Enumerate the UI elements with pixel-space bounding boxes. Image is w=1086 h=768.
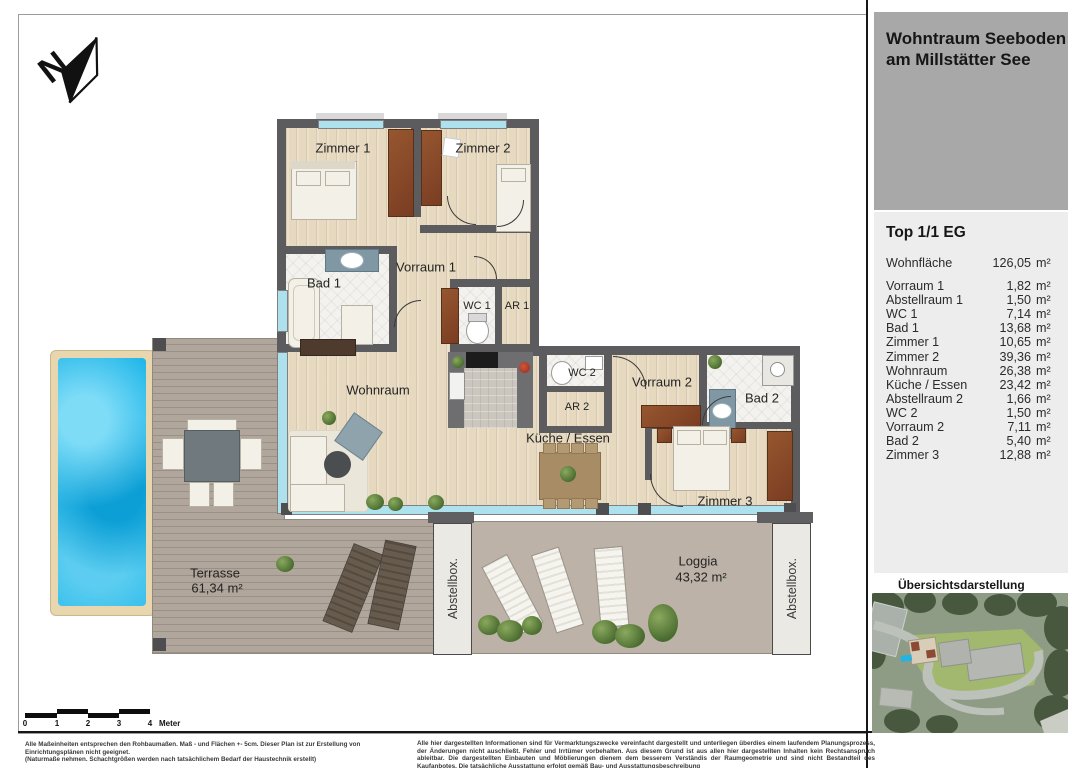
bed: [291, 161, 357, 220]
room-row-unit: m²: [1031, 434, 1058, 448]
room-row-value: 26,38: [981, 364, 1031, 378]
room-row-label: Abstellraum 1: [886, 293, 981, 307]
wardrobe: [388, 129, 414, 217]
wall-segment: [450, 344, 539, 352]
cooktop: [466, 352, 498, 368]
window: [440, 120, 507, 129]
room-label-wc2: WC 2: [568, 367, 596, 379]
room-row: WC 17,14m²: [886, 307, 1058, 321]
wall-segment: [495, 287, 502, 349]
abstellbox-2: Abstellbox.: [772, 523, 811, 655]
room-row: Zimmer 312,88m²: [886, 448, 1058, 462]
dining-chair: [585, 498, 598, 509]
plant: [708, 355, 722, 369]
room-row-unit: m²: [1031, 279, 1058, 293]
bed-headboard: [291, 161, 355, 169]
room-label-zimmer2: Zimmer 2: [456, 141, 511, 156]
room-row-label: WC 2: [886, 406, 981, 420]
sink: [340, 252, 364, 269]
room-row-unit: m²: [1031, 350, 1058, 364]
wardrobe: [421, 130, 442, 206]
room-row-unit: m²: [1031, 448, 1058, 462]
pillow: [677, 430, 701, 445]
project-title-line2: am Millstätter See: [886, 49, 1068, 70]
wall-segment: [450, 279, 539, 287]
overview-heading: Übersichtsdarstellung: [898, 578, 1025, 592]
total-area-unit: m²: [1031, 256, 1058, 270]
scalebar-tick: 2: [86, 719, 90, 728]
room-row: WC 21,50m²: [886, 406, 1058, 420]
plant: [452, 356, 464, 368]
sidebar-room-panel: Top 1/1 EG Wohnfläche 126,05 m² Vorraum …: [874, 212, 1068, 573]
footnote-left-line1: Alle Maßeinheiten entsprechen den Rohbau…: [25, 741, 413, 756]
wall-segment: [539, 354, 547, 432]
room-label-ar2: AR 2: [565, 401, 589, 413]
loggia-label: Loggia: [678, 554, 717, 569]
wardrobe: [767, 431, 793, 501]
room-row-label: Küche / Essen: [886, 378, 981, 392]
room-row-value: 39,36: [981, 350, 1031, 364]
room-row-unit: m²: [1031, 321, 1058, 335]
room-row: Abstellraum 21,66m²: [886, 392, 1058, 406]
room-row-value: 1,50: [981, 406, 1031, 420]
plant: [592, 620, 618, 644]
nightstand: [657, 428, 672, 443]
room-row-label: Zimmer 3: [886, 448, 981, 462]
outdoor-chair: [213, 482, 234, 507]
scalebar-tick: 1: [55, 719, 59, 728]
room-row-label: Abstellraum 2: [886, 392, 981, 406]
plant: [615, 624, 645, 648]
pillow: [501, 168, 526, 182]
room-label-zimmer1: Zimmer 1: [316, 141, 371, 156]
wall-segment: [547, 386, 604, 392]
toilet-tank: [468, 313, 487, 322]
scalebar-segment: [25, 713, 57, 718]
room-row-unit: m²: [1031, 307, 1058, 321]
room-row-value: 23,42: [981, 378, 1031, 392]
plant: [497, 620, 523, 642]
room-row-value: 1,50: [981, 293, 1031, 307]
plant: [366, 494, 384, 510]
room-row-value: 5,40: [981, 434, 1031, 448]
room-row: Bad 113,68m²: [886, 321, 1058, 335]
scalebar-segment: [57, 709, 88, 714]
room-label-vorraum2: Vorraum 2: [632, 375, 692, 390]
room-row-value: 10,65: [981, 335, 1031, 349]
window: [318, 120, 384, 129]
window: [277, 290, 288, 332]
room-row-unit: m²: [1031, 364, 1058, 378]
room-label-wohnraum: Wohnraum: [346, 383, 409, 398]
outdoor-chair: [162, 438, 184, 470]
abstellbox-1-label: Abstellbox.: [446, 558, 460, 619]
outdoor-chair: [240, 438, 262, 470]
room-label-ar1: AR 1: [505, 300, 529, 312]
room-label-bad1: Bad 1: [307, 276, 341, 291]
unit-heading: Top 1/1 EG: [874, 212, 1068, 242]
room-row: Küche / Essen23,42m²: [886, 378, 1058, 392]
total-area-label: Wohnfläche: [886, 256, 981, 270]
room-row-value: 1,82: [981, 279, 1031, 293]
pillow: [325, 171, 350, 186]
terrace-area: 61,34 m²: [191, 581, 242, 596]
glazing-post: [638, 503, 651, 515]
floorplan-page: N: [0, 0, 1086, 768]
wall-segment: [530, 119, 539, 356]
overview-aerial-image: [872, 593, 1068, 733]
scalebar-unit: Meter: [159, 719, 180, 728]
project-title-line1: Wohntraum Seeboden: [886, 28, 1068, 49]
room-label-wc1: WC 1: [463, 300, 491, 312]
room-label-bad2: Bad 2: [745, 391, 779, 406]
scalebar-tick: 4: [148, 719, 152, 728]
bathtub-inner: [293, 285, 315, 341]
deck-post: [153, 338, 166, 351]
north-arrow-icon: N: [35, 25, 110, 120]
room-table: Vorraum 11,82m²Abstellraum 11,50m²WC 17,…: [886, 279, 1058, 462]
window-sill: [316, 113, 384, 119]
pool: [58, 358, 146, 606]
plant: [428, 495, 444, 510]
room-row-label: Zimmer 2: [886, 350, 981, 364]
sideboard: [300, 339, 356, 356]
room-row-value: 13,68: [981, 321, 1031, 335]
room-label-vorraum1: Vorraum 1: [396, 260, 456, 275]
sidebar-header: Wohntraum Seeboden am Millstätter See: [874, 12, 1068, 210]
room-row-label: Vorraum 2: [886, 420, 981, 434]
room-row: Zimmer 239,36m²: [886, 350, 1058, 364]
room-row: Bad 25,40m²: [886, 434, 1058, 448]
abstellbox-2-label: Abstellbox.: [785, 558, 799, 619]
room-row-unit: m²: [1031, 406, 1058, 420]
wardrobe: [441, 288, 459, 344]
terrace-label: Terrasse: [190, 566, 240, 581]
window-sill: [438, 113, 507, 119]
dining-chair: [543, 498, 556, 509]
deck-post: [153, 638, 166, 651]
footnote-left-line2: (Naturmaße nehmen. Schachtgrößen werden …: [25, 756, 413, 764]
room-row-value: 7,11: [981, 420, 1031, 434]
room-row-label: Zimmer 1: [886, 335, 981, 349]
scalebar-tick: 3: [117, 719, 121, 728]
footnote-right: Alle hier dargestellten Informationen si…: [417, 740, 875, 768]
nightstand: [731, 428, 746, 443]
dining-chair: [571, 498, 584, 509]
room-row-value: 12,88: [981, 448, 1031, 462]
window-wall-west: [277, 352, 288, 514]
plant: [648, 604, 678, 642]
room-label-kueche: Küche / Essen: [526, 431, 610, 446]
total-area-row: Wohnfläche 126,05 m²: [886, 256, 1058, 270]
room-row-unit: m²: [1031, 378, 1058, 392]
sofa: [290, 436, 327, 488]
pillow: [703, 430, 727, 445]
outdoor-chair: [189, 482, 210, 507]
room-row-unit: m²: [1031, 335, 1058, 349]
wall-segment: [645, 422, 652, 480]
shower-head: [770, 362, 785, 377]
abstellbox-cap: [757, 512, 813, 523]
footnote-left: Alle Maßeinheiten entsprechen den Rohbau…: [25, 741, 413, 764]
room-row-label: Wohnraum: [886, 364, 981, 378]
plant: [560, 466, 576, 482]
room-row-label: Bad 1: [886, 321, 981, 335]
room-row-label: Bad 2: [886, 434, 981, 448]
plant: [322, 411, 336, 425]
abstellbox-cap: [428, 512, 474, 523]
room-row: Wohnraum26,38m²: [886, 364, 1058, 378]
total-area-value: 126,05: [981, 256, 1031, 270]
room-row-value: 1,66: [981, 392, 1031, 406]
room-row: Vorraum 11,82m²: [886, 279, 1058, 293]
room-row-value: 7,14: [981, 307, 1031, 321]
room-label-zimmer3: Zimmer 3: [698, 494, 753, 509]
plant: [388, 497, 403, 511]
vertical-separator: [866, 0, 868, 768]
loggia-area: 43,32 m²: [675, 570, 726, 585]
dining-chair: [557, 498, 570, 509]
flower: [519, 362, 530, 373]
room-row: Zimmer 110,65m²: [886, 335, 1058, 349]
plant: [276, 556, 294, 572]
wall-segment: [604, 354, 612, 432]
room-row: Vorraum 27,11m²: [886, 420, 1058, 434]
room-row-unit: m²: [1031, 293, 1058, 307]
scalebar-segment: [119, 709, 150, 714]
coffee-table: [324, 451, 351, 478]
wall-segment: [539, 346, 800, 355]
pillow: [296, 171, 321, 186]
room-row-label: Vorraum 1: [886, 279, 981, 293]
outdoor-table: [184, 430, 240, 482]
room-row-label: WC 1: [886, 307, 981, 321]
room-row-unit: m²: [1031, 420, 1058, 434]
scalebar-segment: [88, 713, 119, 718]
room-row-unit: m²: [1031, 392, 1058, 406]
room-row: Abstellraum 11,50m²: [886, 293, 1058, 307]
scalebar-tick: 0: [23, 719, 27, 728]
kitchen-counter: [517, 368, 533, 428]
plant: [522, 616, 542, 635]
sofa-chaise: [290, 484, 345, 512]
wardrobe: [641, 405, 701, 428]
abstellbox-1: Abstellbox.: [433, 523, 472, 655]
kitchen-sink: [449, 372, 465, 400]
